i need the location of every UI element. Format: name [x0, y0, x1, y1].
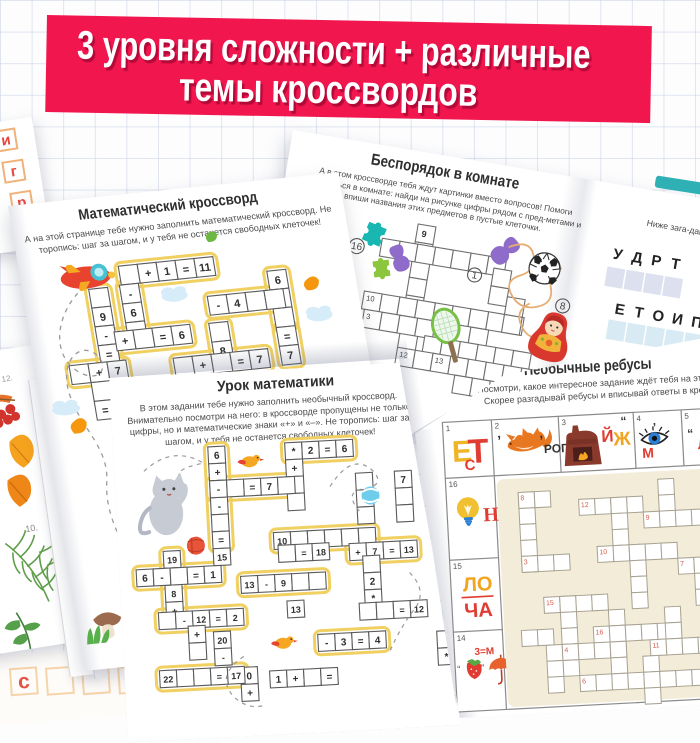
svg-text:16: 16	[595, 629, 603, 636]
svg-text:11: 11	[652, 642, 660, 649]
svg-text:8: 8	[171, 589, 177, 599]
svg-text:16: 16	[350, 241, 363, 254]
svg-text:12.: 12.	[1, 373, 13, 384]
svg-text:10.: 10.	[25, 522, 39, 534]
svg-text:13: 13	[291, 605, 302, 616]
svg-text:+: +	[355, 547, 361, 557]
svg-text:О: О	[651, 307, 666, 326]
svg-text:7: 7	[266, 482, 273, 493]
svg-text:-: -	[217, 502, 221, 513]
svg-text:8: 8	[520, 495, 524, 502]
svg-text:13: 13	[404, 545, 415, 556]
svg-text:+: +	[292, 674, 299, 685]
svg-text:Е: Е	[613, 301, 626, 319]
svg-text:Н: Н	[483, 504, 500, 527]
svg-text:19: 19	[167, 555, 178, 566]
svg-text:6: 6	[342, 444, 349, 455]
svg-text:0: 0	[246, 671, 253, 682]
svg-text:*: *	[291, 447, 296, 458]
svg-text:=: =	[301, 548, 307, 558]
svg-text:Д: Д	[630, 249, 644, 268]
svg-text:-: -	[222, 653, 226, 663]
svg-text:И: И	[671, 310, 684, 329]
svg-text:=: =	[389, 546, 395, 556]
svg-text:П: П	[690, 314, 700, 333]
svg-text:+: +	[214, 468, 221, 479]
svg-text:”: ”	[481, 663, 485, 673]
svg-text:-: -	[160, 573, 164, 584]
svg-text:7: 7	[400, 475, 407, 486]
svg-text:3: 3	[341, 637, 348, 648]
svg-text:18: 18	[316, 547, 327, 558]
svg-text:1: 1	[471, 270, 479, 282]
svg-text:+: +	[194, 630, 201, 641]
svg-text:Т: Т	[670, 255, 682, 273]
svg-text:10: 10	[599, 549, 607, 556]
svg-text:“: “	[620, 414, 627, 428]
svg-text:+: +	[291, 464, 298, 475]
svg-text:12: 12	[196, 614, 207, 625]
svg-text:ЛО: ЛО	[462, 573, 493, 597]
svg-text:=: =	[193, 571, 200, 582]
svg-text:13: 13	[434, 356, 444, 366]
svg-text:=: =	[215, 614, 221, 624]
svg-text:=: =	[324, 445, 331, 456]
svg-text:2: 2	[308, 446, 315, 457]
svg-text:-: -	[217, 485, 221, 496]
svg-text:2: 2	[369, 577, 376, 588]
svg-text:С: С	[464, 457, 476, 475]
svg-text:“: “	[687, 426, 694, 440]
svg-text:14: 14	[456, 633, 466, 642]
svg-text:-: -	[183, 616, 187, 626]
svg-text:22: 22	[163, 674, 174, 685]
svg-text:9: 9	[281, 578, 287, 588]
svg-text:У: У	[612, 246, 625, 264]
svg-text:15: 15	[453, 562, 463, 571]
svg-text:=: =	[326, 672, 333, 683]
svg-text:12: 12	[414, 604, 425, 615]
svg-text:2: 2	[232, 613, 238, 623]
svg-text:15: 15	[217, 552, 228, 563]
svg-text:6: 6	[214, 451, 221, 462]
svg-text:’: ’	[653, 420, 657, 434]
svg-text:9: 9	[645, 515, 649, 522]
svg-text:3: 3	[524, 559, 528, 566]
svg-text:=: =	[399, 605, 405, 615]
svg-text:Т: Т	[633, 304, 645, 322]
svg-text:13: 13	[244, 580, 255, 591]
svg-text:’: ’	[497, 432, 502, 448]
svg-text:-: -	[265, 579, 269, 589]
svg-text:4: 4	[564, 647, 568, 654]
svg-text:8: 8	[559, 301, 567, 313]
svg-text:7: 7	[680, 561, 684, 568]
svg-text:М: М	[642, 444, 654, 461]
svg-text:3=М: 3=М	[474, 646, 494, 658]
svg-text:=: =	[216, 672, 222, 682]
svg-text:Р: Р	[650, 252, 663, 270]
svg-text:=: =	[218, 535, 225, 546]
svg-text:=: =	[357, 636, 364, 647]
svg-text:4: 4	[375, 635, 382, 646]
svg-text:Ж: Ж	[612, 429, 632, 451]
svg-text:11: 11	[198, 262, 212, 275]
svg-text:ЧА: ЧА	[464, 599, 494, 622]
svg-text:16: 16	[448, 480, 458, 489]
svg-text:1: 1	[275, 675, 282, 686]
svg-text:6: 6	[142, 573, 149, 584]
svg-text:1: 1	[210, 570, 217, 581]
svg-text:20: 20	[217, 635, 228, 646]
svg-text:-: -	[325, 638, 329, 649]
svg-text:15: 15	[546, 600, 554, 607]
svg-text:12: 12	[581, 502, 589, 509]
svg-text:10: 10	[366, 293, 376, 303]
svg-text:“: “	[457, 664, 461, 674]
svg-text:=: =	[249, 483, 256, 494]
svg-text:6: 6	[582, 678, 586, 685]
svg-text:17: 17	[231, 671, 242, 682]
svg-text:+: +	[247, 688, 254, 699]
